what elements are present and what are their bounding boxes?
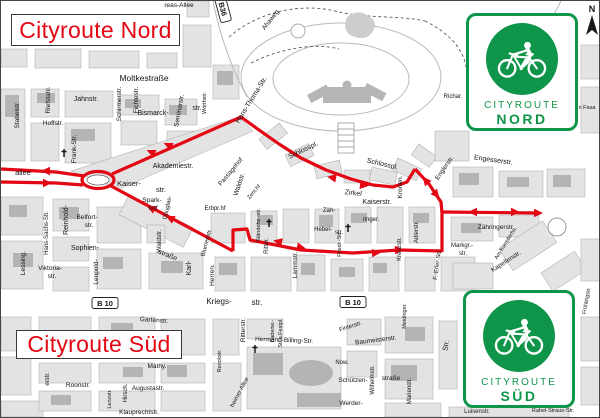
street-label: Bismarck- [137, 110, 169, 117]
street-label: Lessing. [20, 251, 27, 275]
cyclist-icon [494, 316, 544, 356]
street-label: Hebel- [314, 227, 332, 233]
road-badge-text: B 10 [345, 298, 361, 307]
street-label: n Fasa [579, 105, 597, 111]
street-label: Rahel-Straus-Str. [532, 408, 575, 414]
sign-sued-line2: SÜD [500, 388, 537, 404]
route-nord-west-upper [1, 169, 84, 176]
route-arrow [468, 208, 477, 216]
street-label: reas-Allee [164, 2, 194, 9]
street-label: Werder- [339, 400, 362, 407]
road-badge: B 10 [92, 298, 118, 309]
street-label: Augustastr. [132, 385, 165, 392]
street-label: Engesserstr. [473, 154, 513, 166]
street-label: Lenzstr. [107, 389, 113, 409]
street-label: ringer. [363, 217, 380, 223]
street-label: Kronen. [397, 175, 404, 198]
street-label: str. [459, 251, 467, 257]
street-label: Spark- [142, 197, 161, 204]
street-label: Adlerstr. [414, 221, 420, 243]
city-map: B36B 10B 10 NMoltkestraßeJahnstr.Bismarc… [0, 0, 600, 418]
street-label: Erbpr.hf [204, 206, 225, 212]
street-label: Akademiestr. [153, 163, 194, 170]
cyclist-icon [497, 39, 547, 79]
street-label: Friedr.-Str. [337, 231, 343, 257]
street-label: Karl- [186, 260, 193, 275]
fountain [291, 24, 305, 38]
title-box-nord: Cityroute Nord [11, 14, 180, 46]
schloss-building [307, 81, 386, 104]
street-label: Zent.hf [246, 184, 262, 201]
street-label: Jahnstr. [74, 96, 99, 103]
street-label: Klauprechtstr. [119, 409, 159, 416]
street-label: Waldstr. [156, 229, 163, 252]
title-nord-text: Cityroute Nord [19, 17, 171, 44]
garden-parterre [338, 123, 354, 153]
street-label: str. [252, 298, 263, 307]
road-badge-text: B 10 [97, 299, 113, 308]
street-label: Ständehs.-str. [256, 208, 262, 242]
street-label: Richar. [444, 94, 463, 100]
route-nord-east [442, 212, 539, 213]
street-label: allee [15, 168, 31, 177]
street-label: Belfort- [77, 214, 98, 221]
route-arrow [41, 167, 50, 175]
street-label: Hermann-Billing-Str. [255, 336, 314, 345]
pond [345, 12, 375, 38]
street-label: Wörthstr. [202, 92, 208, 114]
title-box-sued: Cityroute Süd [16, 330, 182, 359]
north-arrow-icon [586, 15, 598, 35]
street-label: Schirmerstr. [116, 86, 123, 121]
street-label: Roonstr. [66, 382, 90, 389]
street-label: Waldstr. [233, 172, 247, 196]
sign-cityroute-sued: CITYROUTE SÜD [463, 290, 575, 408]
street-label: Herren. [209, 264, 216, 286]
street-label: Frank-Str. [71, 135, 78, 164]
street-label: Kriegs- [206, 297, 232, 306]
street-label: N [589, 4, 596, 14]
roundabout-island [87, 175, 109, 185]
street-label: Reinhold- [63, 204, 70, 235]
street-label: Lammstr. [292, 251, 299, 278]
street-label: Hans-Sachs-Str. [44, 211, 50, 255]
street-label: Renckstr. [217, 349, 223, 372]
sign-cityroute-nord: CITYROUTE NORD [466, 13, 578, 131]
street-label: Fichtestr. [133, 87, 140, 114]
street-label: Meidinger. [402, 303, 408, 329]
street-label: Luisenstr. [464, 409, 490, 415]
sign-nord-line1: CITYROUTE [484, 100, 560, 111]
street-label: hof [148, 205, 157, 212]
street-label: Moltkestraße [119, 73, 168, 83]
street-label: Leopold- [93, 259, 100, 284]
road-badge: B 10 [340, 297, 366, 308]
street-label: Kaiser- [117, 179, 141, 188]
street-label: Schützen- [338, 377, 367, 384]
street-label: Ritterstr. [240, 318, 247, 342]
route-nord-west-lower [1, 182, 83, 185]
street-label: Ritter. [264, 238, 270, 254]
street-label: Zähringerstr. [478, 224, 515, 231]
street-label: Sophien- [71, 245, 100, 252]
street-label: Viktoria- [38, 265, 62, 272]
durlacher-tor-circle [548, 218, 566, 236]
street-label: Mathy. [147, 363, 166, 370]
street-label: straße [382, 375, 401, 382]
title-sued-text: Cityroute Süd [27, 331, 170, 358]
street-label: Riefstahl. [45, 86, 52, 113]
street-label: Kreuzstr. [397, 237, 403, 261]
street-label: Stabelstr. [14, 101, 21, 128]
street-label: str. [85, 222, 94, 229]
street-label: Hoffstr. [43, 120, 64, 127]
street-label: Markgr.- [451, 243, 473, 249]
street-label: str. [48, 273, 57, 280]
street-label: Zäh- [323, 208, 335, 214]
street-label: Wilhelmstr. [370, 365, 376, 395]
sign-circle [483, 300, 555, 372]
street-label: str. [192, 105, 201, 112]
street-label: erstr. [45, 372, 51, 386]
sign-nord-line2: NORD [496, 111, 547, 127]
sign-circle [486, 23, 558, 95]
sign-sued-line1: CITYROUTE [481, 377, 557, 388]
street-label: Marienstr. [407, 377, 413, 404]
route-arrow [43, 179, 52, 187]
street-label: Frühlingstr. [582, 286, 593, 314]
street-label: Ahaweg [261, 8, 281, 31]
street-label: Kaiserstr. [362, 199, 391, 206]
street-label: Zirkel [344, 189, 362, 198]
street-label: str. [156, 185, 166, 194]
street-label: Hirsch. [123, 383, 129, 402]
street-label: Now. [335, 360, 349, 366]
